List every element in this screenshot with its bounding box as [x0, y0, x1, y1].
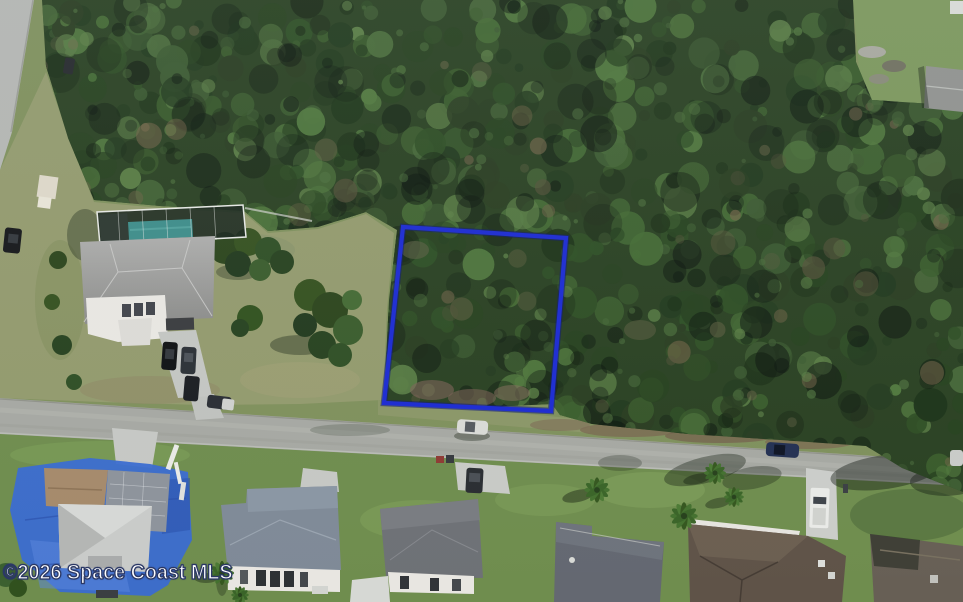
aerial-photo: ©2026 Space Coast MLS [0, 0, 963, 602]
watermark-text: ©2026 Space Coast MLS [3, 561, 233, 585]
atmosphere-overlay [0, 0, 963, 602]
